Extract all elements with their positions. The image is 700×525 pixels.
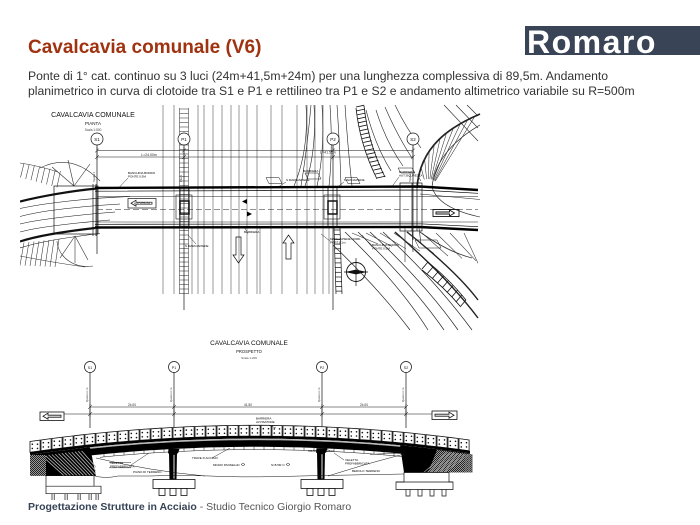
svg-text:L=24.00m: L=24.00m [141, 153, 157, 157]
svg-text:Pila 1: Pila 1 [179, 175, 183, 182]
svg-text:BARRIERA: BARRIERA [303, 169, 318, 173]
svg-text:Quota s.l.m.: Quota s.l.m. [317, 387, 321, 402]
svg-text:L=41.50m: L=41.50m [320, 151, 336, 155]
svg-text:S1: S1 [88, 366, 92, 370]
svg-text:P2: P2 [320, 366, 324, 370]
svg-text:AUT.SICUREZZA: AUT.SICUREZZA [399, 173, 423, 177]
svg-text:P1: P1 [172, 366, 176, 370]
svg-text:S1: S1 [94, 137, 100, 142]
svg-text:41.50: 41.50 [244, 403, 252, 407]
svg-text:Scala 1:500: Scala 1:500 [85, 128, 102, 132]
svg-text:CAVALCAVIA COMUNALE: CAVALCAVIA COMUNALE [210, 340, 288, 347]
svg-text:CAVALCAVIA COMUNALE: CAVALCAVIA COMUNALE [51, 112, 135, 119]
svg-text:Quota s.l.m.: Quota s.l.m. [85, 387, 89, 402]
svg-text:PROSPETTO: PROSPETTO [236, 349, 262, 354]
svg-text:MICRO PANNELLI: MICRO PANNELLI [213, 463, 238, 467]
svg-text:P1: P1 [181, 137, 187, 142]
svg-text:S.MARCIAPIEDE: S.MARCIAPIEDE [185, 244, 209, 248]
svg-text:P2: P2 [330, 137, 336, 142]
svg-text:S2: S2 [404, 366, 408, 370]
svg-text:PORT.9.1m: PORT.9.1m [330, 240, 346, 244]
svg-text:S=8.5M: S=8.5M [271, 463, 282, 467]
svg-text:S.MARCIAPIEDE: S.MARCIAPIEDE [286, 178, 310, 182]
svg-text:PONTE 0.5M: PONTE 0.5M [128, 174, 146, 178]
svg-text:AVVISATORE: AVVISATORE [256, 420, 275, 424]
svg-text:AUTOSTRADA: AUTOSTRADA [134, 203, 151, 206]
svg-text:24.00: 24.00 [128, 403, 136, 407]
svg-text:24.00: 24.00 [360, 403, 368, 407]
svg-text:PREFABBRICATA: PREFABBRICATA [345, 461, 369, 465]
svg-text:BEDOLO TERRENO: BEDOLO TERRENO [352, 469, 381, 473]
svg-text:CRACK D LAGGIO: CRACK D LAGGIO [308, 449, 335, 453]
svg-text:PIANTA: PIANTA [85, 121, 101, 126]
svg-text:PIANO DI TERRENO: PIANO DI TERRENO [133, 470, 162, 474]
svg-text:PONTE 0.5M: PONTE 0.5M [372, 246, 390, 250]
svg-text:Quota s.l.m.: Quota s.l.m. [401, 387, 405, 402]
svg-text:S2: S2 [410, 137, 416, 142]
svg-text:Scala 1:200: Scala 1:200 [241, 356, 257, 360]
svg-text:Quota s.l.m.: Quota s.l.m. [169, 387, 173, 402]
